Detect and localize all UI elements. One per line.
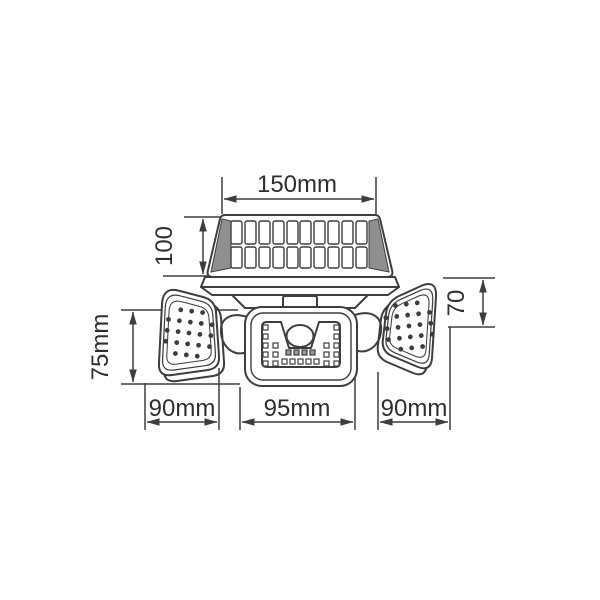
dimension-diagram: 150mm 100 75mm 70 90mm 95mm 90mm	[0, 0, 600, 600]
dim-right-head-height: 70	[443, 280, 483, 325]
dim-right-head-height-label: 70	[443, 290, 470, 317]
dim-top-width-label: 150mm	[257, 171, 337, 198]
dim-bottom-left-label: 90mm	[149, 395, 216, 422]
dimension-diagram-page: 150mm 100 75mm 70 90mm 95mm 90mm	[0, 0, 600, 600]
dim-bottom-left: 90mm	[147, 395, 217, 422]
left-hinge	[221, 315, 247, 353]
right-lamp-head	[378, 284, 436, 374]
dim-solar-height-label: 100	[151, 226, 178, 266]
pir-sensor	[287, 325, 314, 347]
panel-rim-lower	[201, 287, 399, 295]
dim-bottom-center: 95mm	[242, 395, 353, 422]
dim-left-head-height: 75mm	[87, 312, 133, 382]
panel-rim	[201, 277, 399, 287]
left-lamp-head	[159, 290, 224, 381]
dim-solar-height: 100	[151, 219, 203, 274]
dim-bottom-right-label: 90mm	[381, 395, 448, 422]
dim-top-width: 150mm	[224, 171, 374, 199]
dim-bottom-right: 90mm	[380, 395, 448, 422]
solar-panel	[201, 215, 399, 295]
center-lamp-head	[245, 307, 357, 386]
dim-bottom-center-label: 95mm	[264, 395, 331, 422]
dim-left-head-height-label: 75mm	[87, 314, 114, 381]
